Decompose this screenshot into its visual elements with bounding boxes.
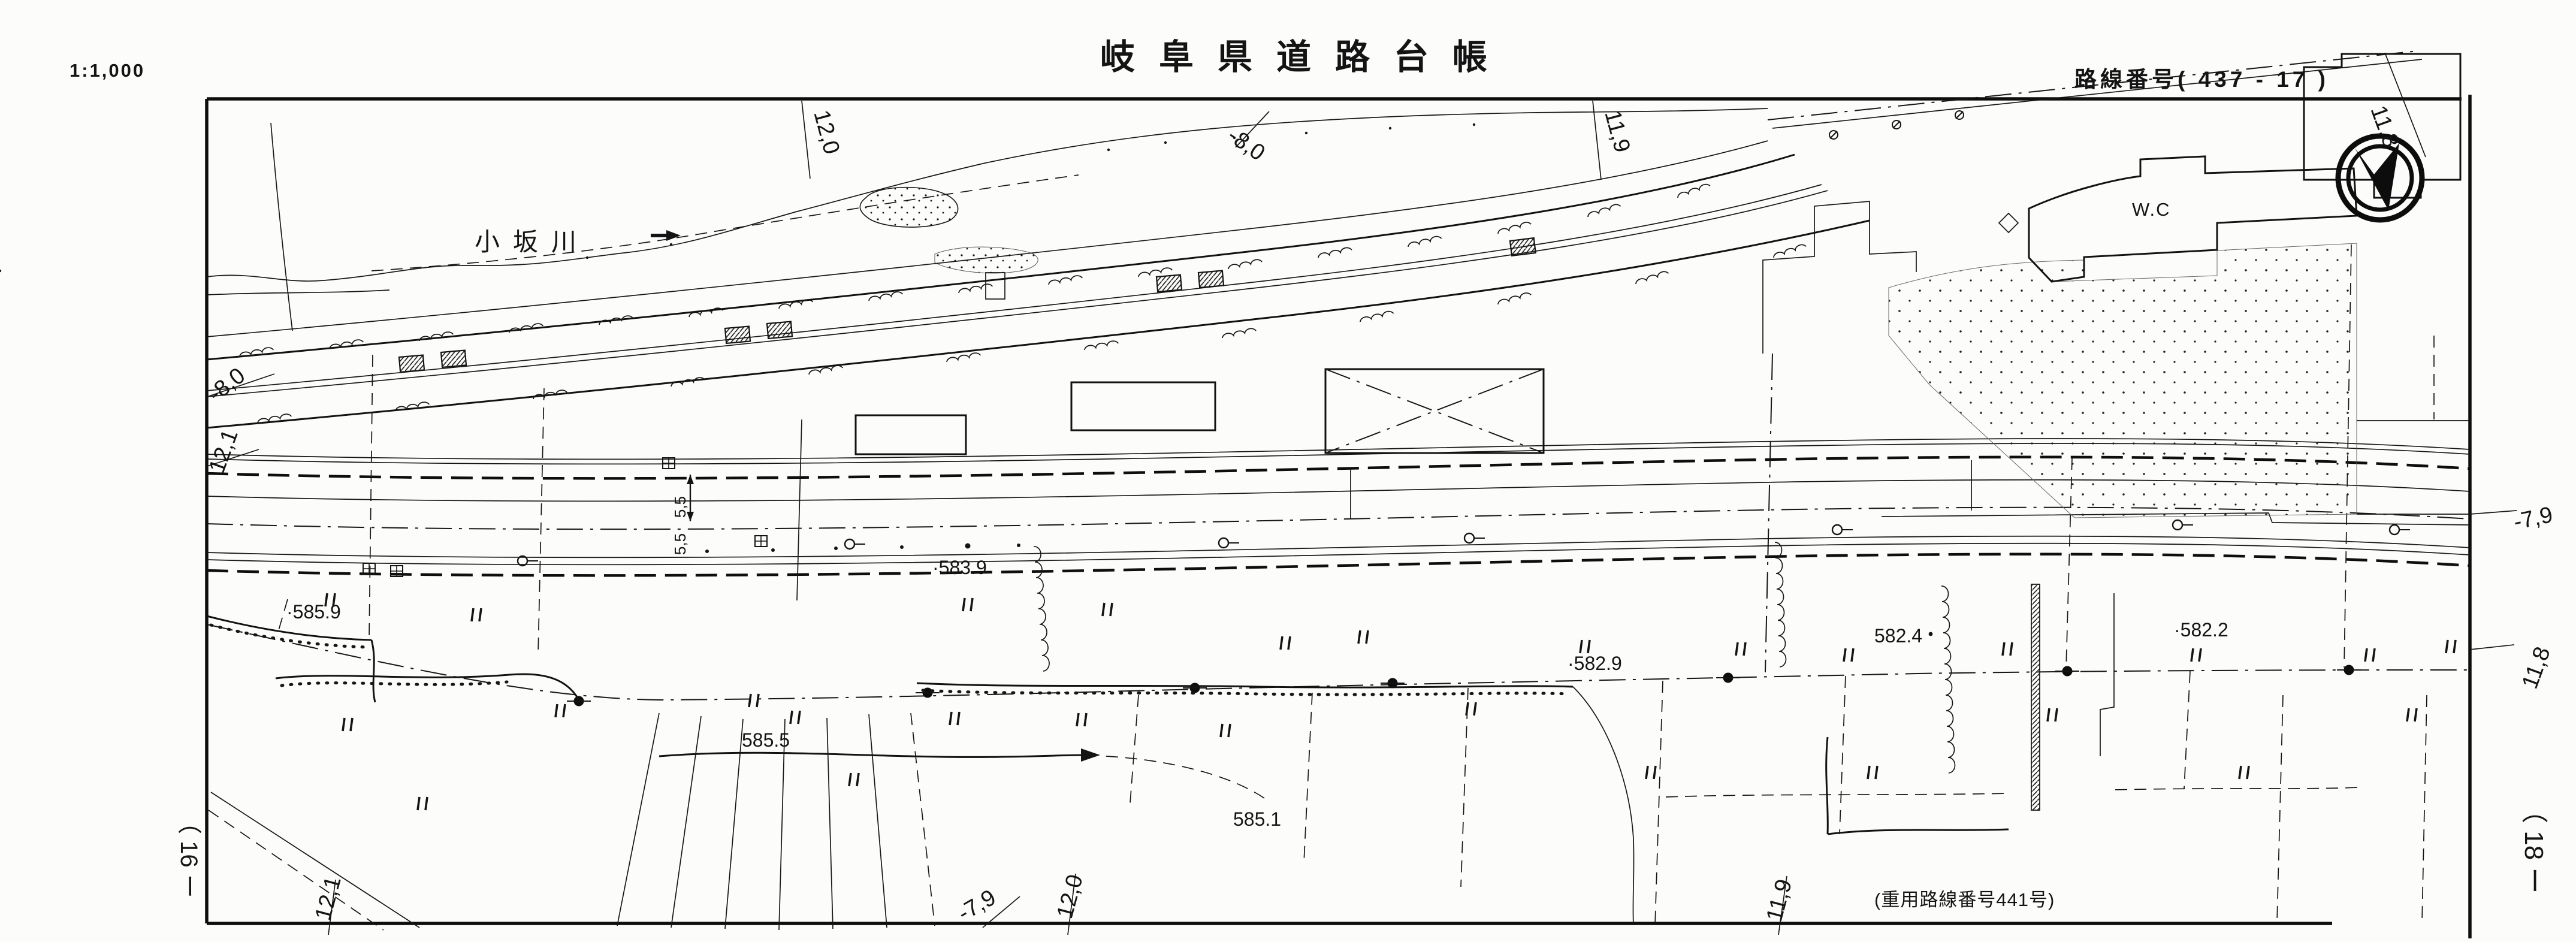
spot-elevation: 585.1	[1233, 808, 1281, 830]
grade-tick-bottom: 12,0	[1052, 872, 1088, 921]
grade-tick-bottom: 11,9	[1762, 877, 1797, 925]
paddy-symbols	[325, 593, 2456, 810]
road-width-label: 5,5	[671, 496, 689, 518]
grade-tick-top: 11,9	[1599, 107, 1635, 155]
grade-tick-left: 12,1	[204, 426, 243, 476]
reuse-route-note: (重用路線番号441号)	[1874, 889, 2055, 910]
spot-elevation: ·582.2	[2174, 619, 2228, 641]
wc-label: W.C	[2132, 199, 2171, 220]
spot-elevation: 582.4	[1874, 625, 1922, 647]
road-ledger-sheet: 1:1,000 岐阜県道路台帳 路線番号( 437 - 17 )	[0, 0, 2576, 942]
map-drawing: 小坂川 W.C (重用路線番号441号) ·585.9 ·583.9 585.5…	[0, 0, 2576, 942]
river-name-label: 小坂川	[475, 228, 590, 256]
sheet-ref-right: （ 18 ー	[2519, 797, 2548, 893]
levee-layer	[207, 141, 1870, 428]
spot-elevation: ·582.9	[1568, 653, 1622, 674]
farmland-layer	[207, 542, 2470, 930]
grade-tick-left: -8,0	[204, 363, 250, 407]
grade-tick-right: -7,9	[2511, 502, 2555, 535]
grade-tick-bottom: -7,9	[954, 885, 1001, 926]
spot-elevation: ·585.9	[286, 601, 341, 623]
grade-tick-top: 11,8	[2366, 102, 2404, 151]
spot-elevation: ·583.9	[932, 557, 987, 578]
grade-tick-right: 11,8	[2517, 644, 2556, 692]
sheet-ref-left: （ 16 ー	[176, 810, 202, 898]
road-width-label: 5,5	[671, 533, 689, 555]
spot-elevation: 585.5	[742, 729, 790, 751]
grade-tick-top: 12,0	[808, 107, 844, 156]
grade-tick-top: -8,0	[1223, 123, 1270, 166]
river-layer	[0, 108, 1768, 331]
grade-tick-bottom: 12,1	[310, 874, 346, 923]
